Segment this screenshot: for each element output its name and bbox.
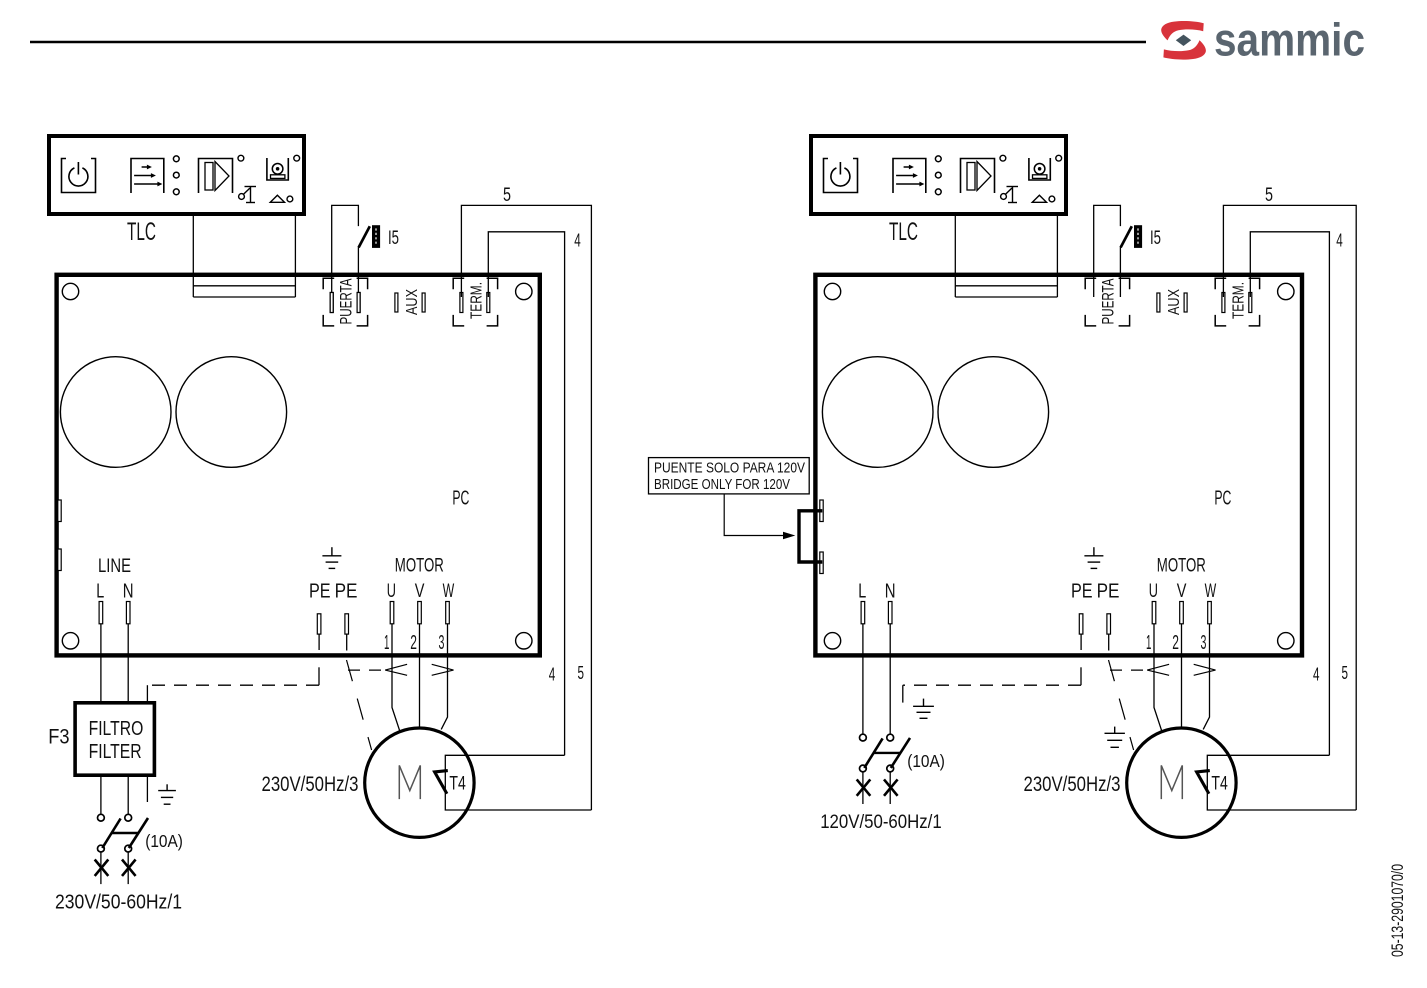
svg-text:I5: I5 xyxy=(1150,227,1161,249)
svg-text:PUERTA: PUERTA xyxy=(1099,278,1118,324)
svg-text:T4: T4 xyxy=(1211,774,1228,795)
svg-text:(10A): (10A) xyxy=(907,751,945,771)
svg-text:F3: F3 xyxy=(48,725,69,748)
svg-text:MOTOR: MOTOR xyxy=(395,556,444,577)
svg-text:FILTER: FILTER xyxy=(89,741,142,763)
svg-text:1: 1 xyxy=(1146,632,1151,654)
svg-text:TLC: TLC xyxy=(127,218,156,246)
svg-text:N: N xyxy=(123,580,134,603)
svg-text:sammic: sammic xyxy=(1214,14,1365,66)
svg-text:N: N xyxy=(885,580,896,603)
svg-text:PC: PC xyxy=(452,487,469,510)
svg-text:4: 4 xyxy=(1313,665,1320,685)
svg-text:U: U xyxy=(387,580,396,602)
svg-text:230V/50Hz/3: 230V/50Hz/3 xyxy=(262,773,359,796)
svg-text:230V/50Hz/3: 230V/50Hz/3 xyxy=(1024,773,1121,796)
svg-text:05-13-2901070/0: 05-13-2901070/0 xyxy=(1388,864,1407,957)
svg-text:4: 4 xyxy=(574,231,581,251)
svg-text:FILTRO: FILTRO xyxy=(89,718,144,740)
svg-text:PE: PE xyxy=(309,580,331,603)
svg-text:5: 5 xyxy=(578,663,585,683)
svg-text:1: 1 xyxy=(384,632,389,654)
svg-text:U: U xyxy=(1149,580,1158,602)
svg-text:PUERTA: PUERTA xyxy=(337,278,356,324)
svg-text:5: 5 xyxy=(1342,663,1349,683)
svg-text:3: 3 xyxy=(1201,632,1207,654)
svg-text:PC: PC xyxy=(1214,487,1231,510)
svg-text:V: V xyxy=(415,580,425,602)
svg-text:TLC: TLC xyxy=(889,218,918,246)
svg-text:5: 5 xyxy=(1265,184,1273,206)
svg-text:TERM.: TERM. xyxy=(469,282,486,319)
svg-text:L: L xyxy=(96,580,104,603)
svg-text:W: W xyxy=(1205,580,1217,602)
svg-text:3: 3 xyxy=(439,632,445,654)
svg-text:2: 2 xyxy=(410,632,417,654)
svg-text:T4: T4 xyxy=(449,774,466,795)
svg-text:AUX: AUX xyxy=(404,288,421,315)
svg-text:AUX: AUX xyxy=(1166,288,1183,315)
svg-text:(10A): (10A) xyxy=(145,831,183,851)
svg-text:PE: PE xyxy=(335,580,358,603)
svg-text:V: V xyxy=(1177,580,1187,602)
svg-text:LINE: LINE xyxy=(98,555,131,577)
svg-text:PE: PE xyxy=(1097,580,1120,603)
svg-text:5: 5 xyxy=(503,184,511,206)
svg-text:230V/50-60Hz/1: 230V/50-60Hz/1 xyxy=(55,891,182,914)
svg-text:L: L xyxy=(858,580,866,603)
svg-text:MOTOR: MOTOR xyxy=(1157,556,1206,577)
svg-text:120V/50-60Hz/1: 120V/50-60Hz/1 xyxy=(820,811,942,833)
svg-text:I5: I5 xyxy=(388,227,399,249)
svg-text:W: W xyxy=(443,580,455,602)
svg-text:4: 4 xyxy=(549,665,556,685)
svg-text:4: 4 xyxy=(1336,231,1343,251)
svg-text:TERM.: TERM. xyxy=(1231,282,1248,319)
svg-text:PE: PE xyxy=(1071,580,1093,603)
svg-text:BRIDGE ONLY FOR 120V: BRIDGE ONLY FOR 120V xyxy=(654,476,790,493)
svg-text:PUENTE SOLO PARA 120V: PUENTE SOLO PARA 120V xyxy=(654,460,805,477)
svg-text:2: 2 xyxy=(1172,632,1179,654)
